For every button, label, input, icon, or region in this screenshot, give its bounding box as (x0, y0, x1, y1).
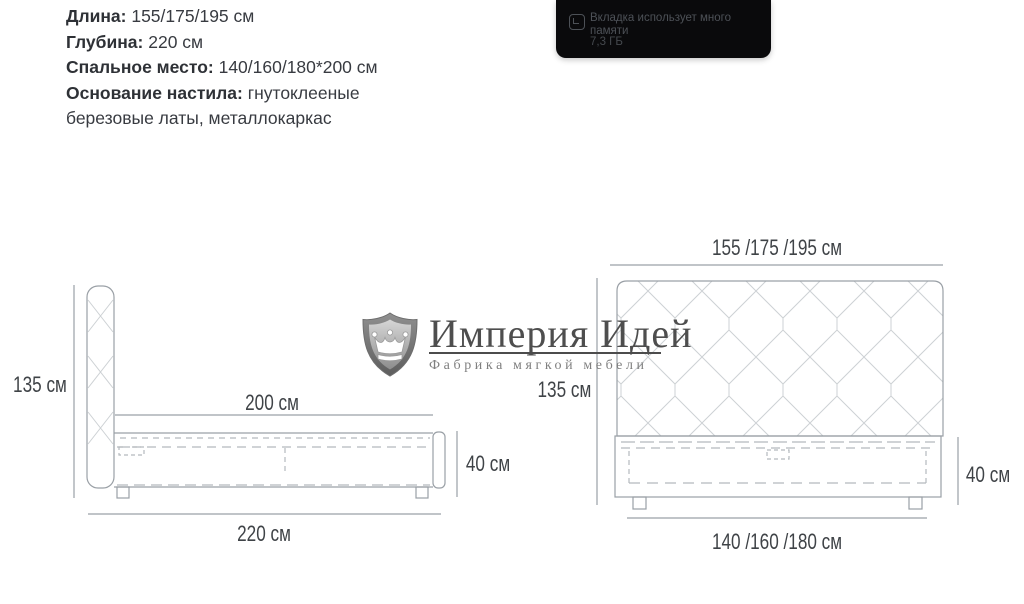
front-width-label: 155 /175 /195 см (695, 235, 859, 261)
side-base-frame (114, 433, 433, 487)
front-leg-left (633, 497, 646, 509)
front-base-stitching (621, 442, 935, 483)
front-leg-right (909, 497, 922, 509)
side-base-stitching (117, 438, 430, 485)
side-total-length-label: 220 см (217, 521, 311, 547)
watermark-title: Империя Идей (429, 310, 679, 357)
bed-technical-drawing (0, 0, 1024, 604)
shield-crown-icon (360, 312, 420, 378)
side-leg-left (117, 487, 129, 498)
side-sleep-length-label: 200 см (225, 390, 319, 416)
front-view-drawing (597, 265, 958, 518)
side-headboard-quilting (88, 300, 113, 444)
watermark-subtitle: Фабрика мягкой мебели (429, 358, 674, 374)
front-base-frame (615, 436, 941, 497)
side-footboard-cap (433, 432, 445, 488)
watermark-divider (429, 352, 661, 354)
front-sleep-width-label: 140 /160 /180 см (695, 529, 859, 555)
front-height-label: 135 см (537, 377, 590, 403)
front-base-height-label: 40 см (964, 462, 1012, 488)
side-leg-right (416, 487, 428, 498)
side-height-label: 135 см (13, 372, 63, 398)
side-base-height-label: 40 см (465, 451, 512, 477)
